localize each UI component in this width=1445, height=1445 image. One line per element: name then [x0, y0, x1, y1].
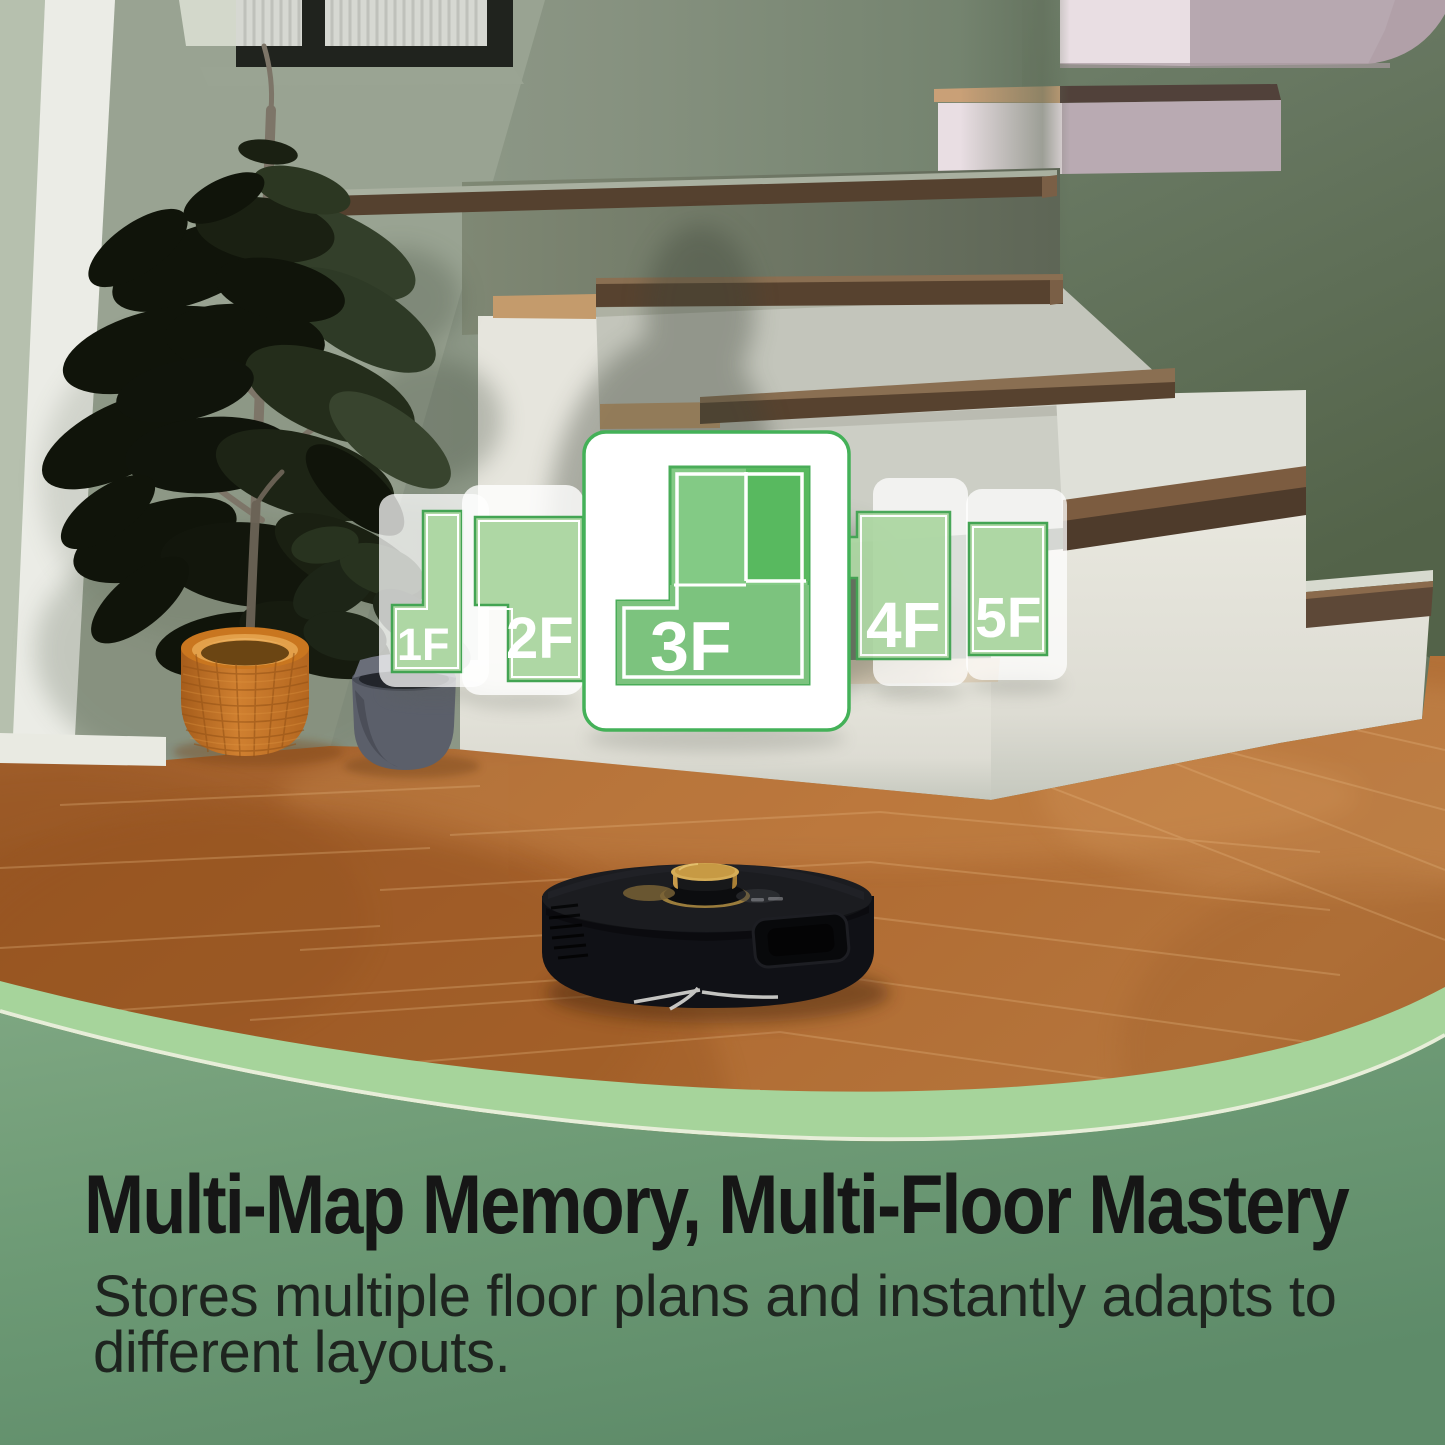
svg-text:1F: 1F	[397, 619, 450, 670]
svg-text:3F: 3F	[650, 607, 732, 685]
svg-text:4F: 4F	[866, 589, 941, 661]
svg-text:Multi-Map Memory, Multi-Floor: Multi-Map Memory, Multi-Floor Mastery	[84, 1157, 1350, 1251]
svg-text:different layouts.: different layouts.	[93, 1320, 510, 1385]
svg-text:2F: 2F	[506, 606, 574, 671]
svg-text:5F: 5F	[975, 586, 1042, 650]
